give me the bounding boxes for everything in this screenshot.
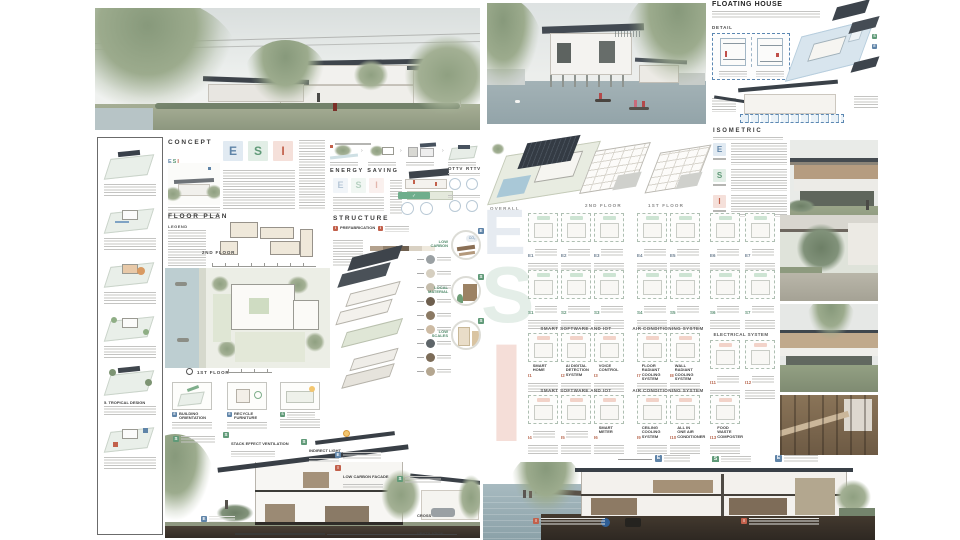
isometric-subtitle bbox=[713, 137, 783, 140]
result-gauge bbox=[420, 202, 433, 215]
s-chip: S bbox=[301, 439, 307, 445]
faded-chip-s: S bbox=[351, 178, 366, 193]
analysis-diagram bbox=[103, 253, 157, 291]
detail-circle bbox=[451, 320, 481, 350]
panel-E2: E2 bbox=[561, 213, 591, 274]
s-chip: S bbox=[713, 169, 726, 182]
bird-flock bbox=[615, 31, 641, 37]
poster-canvas: { "board_left": { "concept": {"title":"C… bbox=[0, 0, 960, 540]
swatch bbox=[409, 246, 422, 251]
i-chip: I bbox=[741, 518, 747, 524]
courtyard bbox=[249, 298, 269, 314]
structure-tag-2: I bbox=[378, 226, 409, 232]
panel-I3: I3VOICE CONTROL bbox=[594, 333, 624, 394]
panel-S3: S3 bbox=[594, 270, 624, 331]
floor2-label: 2ND FLOOR bbox=[585, 203, 622, 208]
callout-e: E bbox=[335, 452, 381, 459]
panel-I2: I2AI DIGITAL DETECTION SYSTEM bbox=[561, 333, 591, 394]
panel-S6: S6 bbox=[710, 270, 740, 331]
s-chip: S bbox=[173, 436, 179, 442]
eco-thumbnail bbox=[280, 382, 320, 410]
panel-S2: S2 bbox=[561, 270, 591, 331]
detail-circle: CO₂ bbox=[451, 230, 481, 260]
e-chip: E bbox=[227, 412, 232, 417]
detail-section-drawing bbox=[757, 38, 783, 66]
panel-description bbox=[594, 445, 624, 456]
axon-floor-layer bbox=[335, 299, 392, 326]
panel-label-caption bbox=[566, 431, 588, 439]
panel-label: AI DIGITAL DETECTION SYSTEM bbox=[566, 364, 588, 378]
floating-house-title: FLOATING HOUSE bbox=[712, 1, 783, 8]
panel-code: E3 bbox=[594, 253, 600, 258]
eco-panel-recycle: ERECYCLE FURNITURE bbox=[227, 382, 267, 433]
analysis-diagram bbox=[103, 199, 157, 237]
second-floor-plan bbox=[212, 221, 316, 263]
rttv-label: RTTV bbox=[466, 166, 481, 171]
ottv-gauge bbox=[449, 178, 461, 190]
axon-base-layer bbox=[341, 318, 403, 348]
hero-render bbox=[95, 8, 480, 130]
iso-paragraph bbox=[731, 143, 787, 165]
interior-render bbox=[780, 395, 878, 455]
ottv-gauge bbox=[449, 200, 461, 212]
analysis-step-title: 5. TROPICAL DESIGN bbox=[104, 400, 156, 405]
eco-thumbnail bbox=[227, 382, 267, 410]
e-chip: E bbox=[775, 455, 782, 462]
floor1-axon bbox=[650, 144, 708, 196]
flag bbox=[208, 167, 211, 170]
tree-icon bbox=[168, 185, 184, 203]
structure-title: STRUCTURE bbox=[333, 215, 389, 222]
person bbox=[523, 490, 526, 498]
analysis-caption bbox=[104, 292, 156, 304]
panel-thumbnail bbox=[710, 340, 740, 369]
panel-code: I3 bbox=[594, 373, 598, 378]
eco-description bbox=[280, 419, 320, 430]
eco-label: RECYCLE FURNITURE bbox=[234, 412, 264, 421]
furniture bbox=[265, 504, 295, 522]
roof-piece bbox=[832, 0, 870, 21]
site-step-diagram bbox=[448, 141, 478, 161]
analysis-step-5: 5. TROPICAL DESIGN bbox=[100, 361, 160, 415]
isometric-title: ISOMETRIC bbox=[713, 128, 763, 134]
panel-label-caption bbox=[717, 306, 739, 314]
panel-thumbnail bbox=[670, 270, 700, 299]
panel-description bbox=[710, 320, 740, 331]
concept-paragraph bbox=[299, 140, 325, 210]
elevation-body bbox=[744, 94, 836, 114]
faded-chip-i: I bbox=[369, 178, 384, 193]
second-floor-label: 2ND FLOOR bbox=[202, 250, 235, 255]
flood-render bbox=[487, 3, 706, 124]
panel-code: S1 bbox=[528, 310, 534, 315]
panel-thumbnail bbox=[637, 270, 667, 299]
furniture bbox=[591, 498, 637, 515]
building-footprint bbox=[293, 300, 319, 330]
panel-thumbnail bbox=[528, 395, 558, 424]
furniture bbox=[653, 480, 713, 493]
panel-code: E6 bbox=[710, 253, 716, 258]
detail-circle bbox=[451, 276, 481, 306]
header-electrical: ELECTRICAL SYSTEM bbox=[703, 332, 779, 337]
furniture bbox=[325, 506, 369, 522]
scale-line bbox=[327, 534, 457, 535]
elevation-caption bbox=[854, 96, 878, 108]
underground-callout: I bbox=[741, 518, 819, 526]
panel-E3: E3 bbox=[594, 213, 624, 274]
callout-label: CROSS VENTILATION bbox=[417, 513, 443, 536]
boat-icon bbox=[629, 107, 649, 110]
stair-core bbox=[721, 474, 724, 516]
i-chip: I bbox=[378, 226, 383, 231]
callout-label: LOW CARBON FACADE bbox=[343, 474, 389, 479]
panel-code: S6 bbox=[710, 310, 716, 315]
panel-label: CEILING COOLING SYSTEM bbox=[642, 426, 664, 440]
panel-label-caption bbox=[601, 306, 623, 314]
site-step-diagram bbox=[368, 141, 398, 161]
panel-code: I13 bbox=[710, 435, 716, 440]
panel-description bbox=[745, 390, 775, 401]
leader-line bbox=[618, 459, 652, 460]
tree-icon bbox=[303, 330, 327, 354]
panel-label-caption bbox=[717, 249, 739, 257]
panel-description bbox=[710, 445, 740, 456]
pontoon-floats bbox=[740, 114, 844, 123]
panel-thumbnail bbox=[594, 333, 624, 362]
e-chip: E bbox=[201, 516, 207, 522]
s-chip: S bbox=[397, 476, 403, 482]
panel-thumbnail bbox=[710, 270, 740, 299]
panel-thumbnail bbox=[528, 333, 558, 362]
panel-label-caption bbox=[535, 306, 557, 314]
panel-label-caption bbox=[644, 249, 666, 257]
header-air-conditioning: AIR CONDITIONING SYSTEM bbox=[628, 326, 708, 331]
floor2-axon bbox=[585, 140, 647, 196]
site-step-caption bbox=[330, 162, 358, 167]
gauge-caption bbox=[448, 195, 480, 198]
panel-thumbnail bbox=[528, 270, 558, 299]
stilts bbox=[550, 75, 632, 87]
eco-tag: S bbox=[280, 412, 320, 418]
plan-room bbox=[260, 227, 294, 239]
panel-code: I7 bbox=[637, 373, 641, 378]
beams bbox=[780, 395, 878, 455]
e-chip: E bbox=[335, 452, 341, 458]
site-step-caption bbox=[368, 162, 396, 167]
e-chip: E bbox=[872, 44, 877, 49]
e-chip: E bbox=[172, 412, 177, 417]
lawn-patch bbox=[213, 294, 231, 342]
concept-chip-i: I bbox=[273, 141, 293, 161]
panel-label-caption bbox=[568, 306, 590, 314]
panel-I6: I6SMART METER bbox=[594, 395, 624, 456]
s-chip: S bbox=[872, 34, 877, 39]
panel-I9: I9CEILING COOLING SYSTEM bbox=[637, 395, 667, 456]
s-chip: S bbox=[223, 432, 229, 438]
panel-I10: I10ALL IN ONE AIR CONDITIONER bbox=[670, 395, 700, 456]
legend-e-tag: E bbox=[655, 455, 690, 462]
structure-tag-prefab: IPREFABRICATION bbox=[333, 226, 375, 231]
person bbox=[317, 93, 320, 102]
panel-code: I9 bbox=[637, 435, 641, 440]
eco-thumbnail bbox=[172, 382, 212, 410]
wall bbox=[848, 223, 878, 265]
panel-thumbnail bbox=[561, 395, 591, 424]
callout-caption bbox=[343, 484, 383, 489]
panel-label: SMART METER bbox=[599, 426, 621, 435]
floor1-label: 1ST FLOOR bbox=[648, 203, 684, 208]
panel-label: SMART HOME bbox=[533, 364, 555, 373]
panel-thumbnail bbox=[561, 333, 591, 362]
concept-title: CONCEPT bbox=[168, 139, 212, 146]
panel-S7: S7 bbox=[745, 270, 775, 331]
underground-callout: I bbox=[533, 518, 605, 526]
panel-code: I1 bbox=[528, 373, 532, 378]
iso-row-e: E bbox=[713, 143, 789, 167]
site-step-diagram bbox=[330, 141, 360, 161]
site-step-diagram bbox=[406, 141, 440, 161]
detail-section-drawing bbox=[720, 38, 746, 66]
energy-caption bbox=[333, 197, 384, 211]
plan-room bbox=[230, 222, 258, 238]
panel-code: I8 bbox=[670, 373, 674, 378]
callout-s-left: S bbox=[173, 436, 215, 444]
panel-code: E2 bbox=[561, 253, 567, 258]
paving bbox=[780, 273, 878, 301]
panel-code: E7 bbox=[745, 253, 751, 258]
floating-exploded-iso: S E bbox=[792, 4, 878, 80]
pass-badge: ✓ bbox=[398, 192, 430, 199]
structure-circle-lowcarbon: LOW CARBON CO₂ E bbox=[428, 228, 484, 273]
panel-code: S2 bbox=[561, 310, 567, 315]
panel-thumbnail bbox=[710, 395, 740, 424]
e-chip: E bbox=[655, 455, 662, 462]
panel-code: I6 bbox=[594, 435, 598, 440]
panel-label-caption bbox=[717, 376, 739, 384]
furniture bbox=[795, 478, 835, 515]
ottv-rttv-gauges: OTTV RTTV bbox=[448, 166, 484, 218]
arrow-icon: › bbox=[361, 148, 363, 154]
panel-code: I5 bbox=[561, 435, 565, 440]
panel-thumbnail bbox=[528, 213, 558, 242]
panel-code: I4 bbox=[528, 435, 532, 440]
white-band bbox=[780, 348, 878, 356]
analysis-diagram bbox=[103, 418, 157, 456]
tree-icon bbox=[350, 56, 392, 94]
panel-E7: E7 bbox=[745, 213, 775, 274]
panel-I8: I8WALL RADIANT COOLING SYSTEM bbox=[670, 333, 700, 394]
window-void bbox=[599, 41, 615, 63]
panel-I13: I13FOOD WASTE COMPOSTER bbox=[710, 395, 740, 456]
panel-label-caption bbox=[601, 249, 623, 257]
furniture bbox=[303, 472, 329, 488]
callout-caption bbox=[231, 451, 275, 457]
circle-label: LOCAL MATERIAL bbox=[428, 286, 448, 295]
legend-title: LEGEND bbox=[168, 224, 188, 229]
terrace-render bbox=[780, 304, 878, 392]
panel-thumbnail bbox=[561, 213, 591, 242]
callout-e-ground: E bbox=[201, 516, 235, 522]
septic-tank-icon bbox=[625, 518, 641, 527]
rttv-gauge bbox=[466, 178, 478, 190]
structure-circle-lowscales: LOW SCALES S bbox=[428, 318, 484, 363]
exploded-axon bbox=[333, 252, 417, 386]
detail-box bbox=[712, 33, 790, 80]
energy-title: ENERGY SAVING bbox=[330, 168, 399, 174]
detail-caption bbox=[756, 71, 784, 77]
plan-room bbox=[270, 241, 300, 255]
arrow-icon: › bbox=[442, 148, 444, 154]
axon-roof bbox=[409, 168, 449, 178]
duck bbox=[515, 100, 520, 103]
marker bbox=[435, 182, 437, 186]
callout-label: STACK EFFECT VENTILATION bbox=[231, 441, 289, 446]
white-band bbox=[794, 179, 878, 191]
circle-label: LOW CARBON bbox=[428, 240, 448, 249]
willow-tree-icon bbox=[806, 304, 856, 348]
iso-paragraph bbox=[731, 169, 787, 191]
panel-E6: E6 bbox=[710, 213, 740, 274]
tree-icon bbox=[204, 183, 220, 201]
plan-room bbox=[300, 229, 313, 257]
tree-icon bbox=[209, 274, 231, 294]
concept-sketch bbox=[168, 163, 220, 205]
panel-thumbnail bbox=[637, 333, 667, 362]
panel-E1: E1 bbox=[528, 213, 558, 274]
panel-code: I2 bbox=[561, 373, 565, 378]
chip-caption bbox=[713, 210, 726, 212]
analysis-step-1 bbox=[100, 145, 160, 196]
iso-row-s: S bbox=[713, 169, 789, 193]
marker bbox=[413, 180, 415, 184]
i-chip: I bbox=[333, 226, 338, 231]
panel-thumbnail bbox=[670, 213, 700, 242]
panel-I12: I12 bbox=[745, 340, 775, 401]
panel-thumbnail bbox=[594, 270, 624, 299]
material-row bbox=[417, 364, 479, 378]
panel-code: S7 bbox=[745, 310, 751, 315]
eco-tag: ERECYCLE FURNITURE bbox=[227, 412, 267, 421]
concept-chip-e: E bbox=[223, 141, 243, 161]
panel-code: S5 bbox=[670, 310, 676, 315]
analysis-diagram bbox=[103, 307, 157, 345]
concept-chip-s: S bbox=[248, 141, 268, 161]
panel-description bbox=[528, 445, 558, 456]
panel-code: I11 bbox=[710, 380, 716, 385]
callout-caption bbox=[405, 476, 441, 483]
panel-code: S4 bbox=[637, 310, 643, 315]
panel-thumbnail bbox=[745, 340, 775, 369]
callout-s-right: S bbox=[397, 476, 441, 483]
site-analysis-sidebar: 5. TROPICAL DESIGN bbox=[97, 137, 163, 535]
structure-circle-localmaterial: LOCAL MATERIAL S bbox=[428, 274, 484, 319]
axon-sub-layer bbox=[341, 363, 394, 389]
gauge-caption bbox=[448, 173, 480, 176]
scale-bar bbox=[235, 533, 325, 535]
panel-description bbox=[637, 445, 667, 456]
panel-code: S3 bbox=[594, 310, 600, 315]
circle-label: LOW SCALES bbox=[428, 330, 448, 339]
scale-ticks bbox=[228, 369, 272, 373]
panel-label: VOICE CONTROL bbox=[599, 364, 621, 373]
panel-E4: E4 bbox=[637, 213, 667, 274]
eco-panel-orientation: EBUILDING ORIENTATION bbox=[172, 382, 212, 433]
panel-label-caption bbox=[568, 249, 590, 257]
panel-label-caption bbox=[752, 306, 774, 314]
ground-slab bbox=[255, 522, 403, 525]
panel-I11: I11 bbox=[710, 340, 740, 401]
sign bbox=[333, 103, 337, 111]
eco-label-caption bbox=[287, 412, 315, 418]
person bbox=[529, 491, 532, 498]
analysis-diagram bbox=[103, 361, 157, 399]
co2-cloud: CO₂ bbox=[466, 235, 478, 242]
panel-code: I12 bbox=[745, 380, 751, 385]
willow-tree-icon bbox=[243, 40, 328, 118]
analysis-diagram bbox=[103, 145, 157, 183]
section-render-right: I I bbox=[483, 462, 875, 540]
panel-thumbnail bbox=[637, 213, 667, 242]
chip-caption bbox=[713, 158, 726, 160]
legend-caption bbox=[784, 455, 818, 462]
north-arrow-icon bbox=[186, 368, 193, 375]
boat-icon bbox=[175, 282, 187, 286]
panel-label-caption bbox=[677, 249, 699, 257]
i-chip: I bbox=[335, 465, 341, 471]
concept-paragraph bbox=[223, 170, 295, 210]
panel-description bbox=[670, 445, 700, 456]
panel-label-caption bbox=[752, 376, 774, 384]
tag-caption bbox=[385, 226, 409, 232]
i-chip: I bbox=[533, 518, 539, 524]
analysis-caption bbox=[104, 238, 156, 250]
panel-description bbox=[745, 320, 775, 331]
wood-facade bbox=[794, 165, 878, 179]
header-smart-iot: SMART SOFTWARE AND IOT bbox=[520, 388, 632, 393]
panel-thumbnail bbox=[594, 213, 624, 242]
callout-caption bbox=[181, 436, 215, 444]
panel-code: E4 bbox=[637, 253, 643, 258]
analysis-caption bbox=[104, 406, 156, 415]
header-smart-iot: SMART SOFTWARE AND IOT bbox=[520, 326, 632, 331]
callout-caption bbox=[541, 518, 605, 526]
panel-label-caption bbox=[644, 306, 666, 314]
i-chip: I bbox=[713, 195, 726, 208]
panel-thumbnail bbox=[670, 333, 700, 362]
panel-label: FLOOR RADIANT COOLING SYSTEM bbox=[642, 364, 664, 382]
panel-I1: I1SMART HOME bbox=[528, 333, 558, 394]
prefab-label: PREFABRICATION bbox=[340, 226, 375, 230]
glazing bbox=[786, 356, 872, 365]
analysis-caption bbox=[104, 184, 156, 196]
panel-thumbnail bbox=[745, 270, 775, 299]
lawn bbox=[780, 365, 878, 392]
floorplan-title: FLOOR PLAN bbox=[168, 213, 228, 220]
panel-thumbnail bbox=[637, 395, 667, 424]
garden bbox=[235, 332, 305, 362]
ottv-label: OTTV bbox=[448, 166, 463, 171]
eco-panel-3: S bbox=[280, 382, 320, 430]
faded-chip-e: E bbox=[333, 178, 348, 193]
panel-label-caption bbox=[535, 249, 557, 257]
canal-bank bbox=[199, 268, 206, 368]
panel-thumbnail bbox=[561, 270, 591, 299]
callout-caption bbox=[209, 516, 235, 522]
furniture bbox=[729, 498, 787, 515]
panel-I7: I7FLOOR RADIANT COOLING SYSTEM bbox=[637, 333, 667, 394]
panel-S4: S4 bbox=[637, 270, 667, 331]
site-plan bbox=[165, 268, 330, 368]
